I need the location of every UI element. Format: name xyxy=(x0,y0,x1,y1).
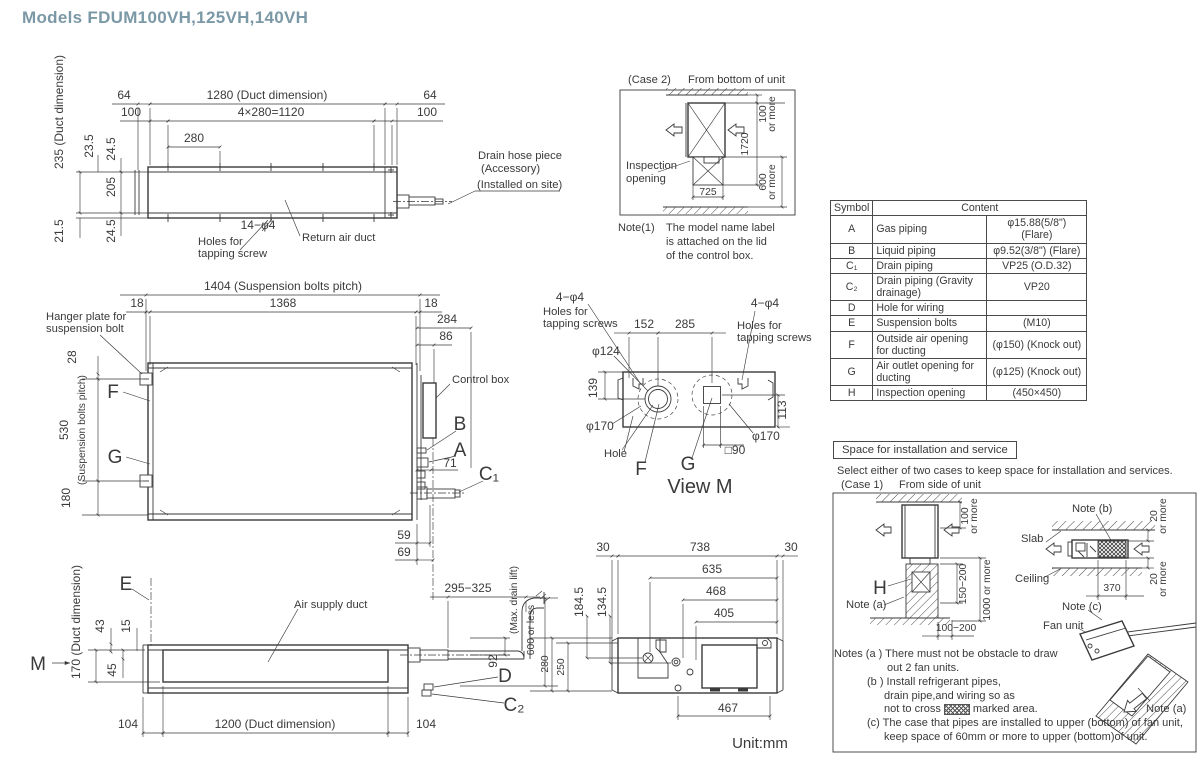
dim-24-5-bottom: 24.5 xyxy=(104,219,118,243)
dim-45: 45 xyxy=(105,663,119,677)
dim-28: 28 xyxy=(65,350,79,364)
install-header: Space for installation and service xyxy=(833,441,1017,459)
dim-180: 180 xyxy=(59,488,73,508)
note1-line2: is attached on the lid xyxy=(666,236,767,248)
row-value: VP25 (O.D.32) xyxy=(987,258,1087,273)
label-c1: C₁ xyxy=(479,464,499,485)
row-symbol: D xyxy=(831,301,873,316)
row-symbol: B xyxy=(831,243,873,258)
label-g: G xyxy=(108,447,123,468)
dim-23-5: 23.5 xyxy=(82,134,96,158)
air-supply-duct-label: Air supply duct xyxy=(294,599,368,611)
dim-725: 725 xyxy=(699,187,716,198)
dim-285: 285 xyxy=(675,317,695,331)
row-value: (φ125) (Knock out) xyxy=(987,358,1087,385)
install-from-label: From side of unit xyxy=(899,479,981,491)
notes-line7: keep space of 60mm or more to upper (bot… xyxy=(884,731,1148,743)
note-c-label: Note (c) xyxy=(1062,601,1102,613)
note1-label: Note(1) xyxy=(618,222,655,234)
dim-100-more: or more xyxy=(767,96,778,132)
dim-600-or-less: 600 or less xyxy=(526,605,537,655)
dim-1368: 1368 xyxy=(270,296,297,310)
dim-64-left: 64 xyxy=(117,88,131,102)
hanger-line2: suspension bolt xyxy=(46,323,125,335)
table-row: BLiquid pipingφ9.52(3/8") (Flare) xyxy=(831,243,1087,258)
dim-468: 468 xyxy=(706,584,726,598)
note1-line3: of the control box. xyxy=(666,250,753,262)
dim-280: 280 xyxy=(540,655,551,672)
table-row: FOutside air opening for ducting(φ150) (… xyxy=(831,331,1087,358)
drain-hose-line1: Drain hose piece xyxy=(478,150,562,162)
case2-label: (Case 2) xyxy=(628,74,671,86)
table-row: C₁Drain pipingVP25 (O.D.32) xyxy=(831,258,1087,273)
row-item: Air outlet opening for ducting xyxy=(873,358,987,385)
dim-530-note: (Suspension bolts pitch) xyxy=(77,375,88,485)
max-drain-lift: (Max. drain lift) xyxy=(509,566,520,634)
view-m-label-g: G xyxy=(681,454,696,475)
row-symbol: C₂ xyxy=(831,273,873,300)
holes-left-line2: tapping screws xyxy=(543,318,618,330)
dim-20-bot-more: or more xyxy=(1158,561,1169,597)
note-a-label: Note (a) xyxy=(846,599,887,611)
dim-30-left: 30 xyxy=(596,540,610,554)
notes-line4: drain pipe,and wiring so as xyxy=(884,690,1015,702)
dim-284: 284 xyxy=(437,312,457,326)
fan-unit-label: Fan unit xyxy=(1043,620,1084,632)
label-c2: C₂ xyxy=(503,695,524,716)
holes-right-title: 4−φ4 xyxy=(751,296,779,310)
row-value: φ15.88(5/8") (Flare) xyxy=(987,216,1087,243)
dim-1280: 1280 (Duct dimension) xyxy=(207,88,328,102)
dim-18-left: 18 xyxy=(130,296,144,310)
row-value: (φ150) (Knock out) xyxy=(987,331,1087,358)
dim-530: 530 xyxy=(57,420,71,440)
notes-line5b: marked area. xyxy=(973,703,1038,715)
dim-205: 205 xyxy=(104,177,118,197)
dim-43: 43 xyxy=(93,619,107,633)
dim-20-top-more: or more xyxy=(1158,498,1169,534)
row-item: Inspection opening xyxy=(873,386,987,401)
dim-113: 113 xyxy=(775,400,789,419)
header-content: Content xyxy=(873,201,1087,216)
table-row: AGas pipingφ15.88(5/8") (Flare) xyxy=(831,216,1087,243)
table-row: DHole for wiring xyxy=(831,301,1087,316)
dim-738: 738 xyxy=(690,540,710,554)
label-d: D xyxy=(498,666,512,687)
ins-dim-370: 370 xyxy=(1103,583,1120,594)
table-row: C₂Drain piping (Gravity drainage)VP20 xyxy=(831,273,1087,300)
holes-left-title: 4−φ4 xyxy=(556,290,584,304)
ceiling-label: Ceiling xyxy=(1015,573,1049,585)
dim-467: 467 xyxy=(718,701,738,715)
install-case1-label: (Case 1) xyxy=(841,479,883,491)
row-item: Suspension bolts xyxy=(873,316,987,331)
row-value: (M10) xyxy=(987,316,1087,331)
install-intro: Select either of two cases to keep space… xyxy=(837,465,1173,477)
ins-dim-150-200: 150−200 xyxy=(958,564,969,605)
label-m: M xyxy=(30,654,46,675)
slab-label: Slab xyxy=(1021,533,1043,545)
row-item: Liquid piping xyxy=(873,243,987,258)
inspection-line1: Inspection xyxy=(626,160,677,172)
notes-line5a: not to cross xyxy=(884,703,941,715)
row-value: VP20 xyxy=(987,273,1087,300)
symbol-table: Symbol Content AGas pipingφ15.88(5/8") (… xyxy=(830,200,1087,401)
row-symbol: H xyxy=(831,386,873,401)
row-symbol: F xyxy=(831,331,873,358)
label-e: E xyxy=(120,574,133,595)
table-row: GAir outlet opening for ducting(φ125) (K… xyxy=(831,358,1087,385)
unit-mm-label: Unit:mm xyxy=(732,735,788,752)
dim-295-325: 295−325 xyxy=(444,581,491,595)
row-item: Drain piping xyxy=(873,258,987,273)
dim-170: 170 (Duct dimension) xyxy=(69,565,83,679)
row-value: φ9.52(3/8") (Flare) xyxy=(987,243,1087,258)
dim-1120: 4×280=1120 xyxy=(238,105,305,119)
row-item: Hole for wiring xyxy=(873,301,987,316)
top-view-linework xyxy=(135,163,452,222)
dim-250: 250 xyxy=(556,658,567,675)
table-header-row: Symbol Content xyxy=(831,201,1087,216)
dim-280: 280 xyxy=(184,131,204,145)
view-m-title: View M xyxy=(667,476,732,498)
dim-18-right: 18 xyxy=(424,296,438,310)
dim-30-right: 30 xyxy=(784,540,798,554)
row-value xyxy=(987,301,1087,316)
dim-600-more: or more xyxy=(767,164,778,200)
dim-134-5: 134.5 xyxy=(595,587,609,617)
hanger-line1: Hanger plate for xyxy=(46,311,126,323)
dim-15: 15 xyxy=(119,619,133,633)
return-air-duct-label: Return air duct xyxy=(302,232,376,244)
holes-left-line1: Holes for xyxy=(543,306,588,318)
notes-line6: (c) The case that pipes are installed to… xyxy=(867,717,1183,729)
row-item: Gas piping xyxy=(873,216,987,243)
label-h: H xyxy=(873,578,887,599)
dim-152: 152 xyxy=(634,317,654,331)
hatch-swatch-icon xyxy=(944,704,970,715)
dim-phi124: φ124 xyxy=(592,344,620,358)
row-symbol: C₁ xyxy=(831,258,873,273)
header-symbol: Symbol xyxy=(831,201,873,216)
dim-184-5: 184.5 xyxy=(572,587,586,617)
dim-1404: 1404 (Suspension bolts pitch) xyxy=(204,279,362,293)
dim-86: 86 xyxy=(439,329,453,343)
note1-line1: The model name label xyxy=(666,222,775,234)
notes-line5: not to crossmarked area. xyxy=(884,703,1038,715)
dim-1200: 1200 (Duct dimension) xyxy=(215,717,336,731)
ins-dim-100-200: 100−200 xyxy=(936,623,977,634)
label-f: F xyxy=(107,382,119,403)
dim-1720: 1720 xyxy=(740,132,751,155)
notes-line1: Notes (a ) There must not be obstacle to… xyxy=(834,648,1058,660)
dim-71: 71 xyxy=(443,456,457,470)
note-b-label: Note (b) xyxy=(1072,503,1113,515)
bottom-view-linework xyxy=(612,638,783,693)
table-row: HInspection opening(450×450) xyxy=(831,386,1087,401)
row-value: (450×450) xyxy=(987,386,1087,401)
holes-right-line1: Holes for xyxy=(737,320,782,332)
drain-hose-line3: (Installed on site) xyxy=(477,179,562,191)
dim-139: 139 xyxy=(586,378,600,398)
row-item: Outside air opening for ducting xyxy=(873,331,987,358)
row-symbol: A xyxy=(831,216,873,243)
label-b: B xyxy=(454,414,467,435)
top-view-labels: 64 1280 (Duct dimension) 64 100 4×280=11… xyxy=(52,55,562,260)
dim-21-5: 21.5 xyxy=(52,219,66,243)
inspection-line2: opening xyxy=(626,173,666,185)
case2-from-label: From bottom of unit xyxy=(688,74,786,86)
dim-235: 235 (Duct dimension) xyxy=(52,55,66,169)
phi170-right: φ170 xyxy=(752,429,780,443)
ins-dim-100-more: or more xyxy=(969,498,980,534)
phi170-left: φ170 xyxy=(586,419,614,433)
control-box-label: Control box xyxy=(452,374,510,386)
note-a2-label: Note (a) xyxy=(1146,703,1187,715)
dim-635: 635 xyxy=(702,562,722,576)
table-row: ESuspension bolts(M10) xyxy=(831,316,1087,331)
holes-line2: tapping screw xyxy=(198,248,268,260)
holes-label: 14−φ4 xyxy=(241,218,276,232)
view-m-label-f: F xyxy=(635,459,647,480)
drain-hose-line2: (Accessory) xyxy=(481,163,540,175)
dim-sq90: □90 xyxy=(725,443,746,457)
ins-dim-1000: 1000 or more xyxy=(982,559,993,621)
notes-line3: (b ) Install refrigerant pipes, xyxy=(867,676,1001,688)
dim-405: 405 xyxy=(714,606,734,620)
holes-line1: Holes for xyxy=(198,236,243,248)
notes-line2: out 2 fan units. xyxy=(887,662,959,674)
dim-100-right: 100 xyxy=(417,105,437,119)
dim-64-right: 64 xyxy=(423,88,437,102)
dim-100-left: 100 xyxy=(121,105,141,119)
dim-69: 69 xyxy=(397,545,411,559)
row-item: Drain piping (Gravity drainage) xyxy=(873,273,987,300)
hole-label: Hole xyxy=(604,448,627,460)
holes-right-line2: tapping screws xyxy=(737,332,812,344)
dim-59: 59 xyxy=(397,528,411,542)
dim-24-5-top: 24.5 xyxy=(104,137,118,161)
row-symbol: G xyxy=(831,358,873,385)
dim-104-right: 104 xyxy=(416,717,436,731)
view-m-linework xyxy=(618,372,775,427)
drawing-sheet: Models FDUM100VH,125VH,140VH xyxy=(0,0,1200,761)
dim-104-left: 104 xyxy=(118,717,138,731)
row-symbol: E xyxy=(831,316,873,331)
